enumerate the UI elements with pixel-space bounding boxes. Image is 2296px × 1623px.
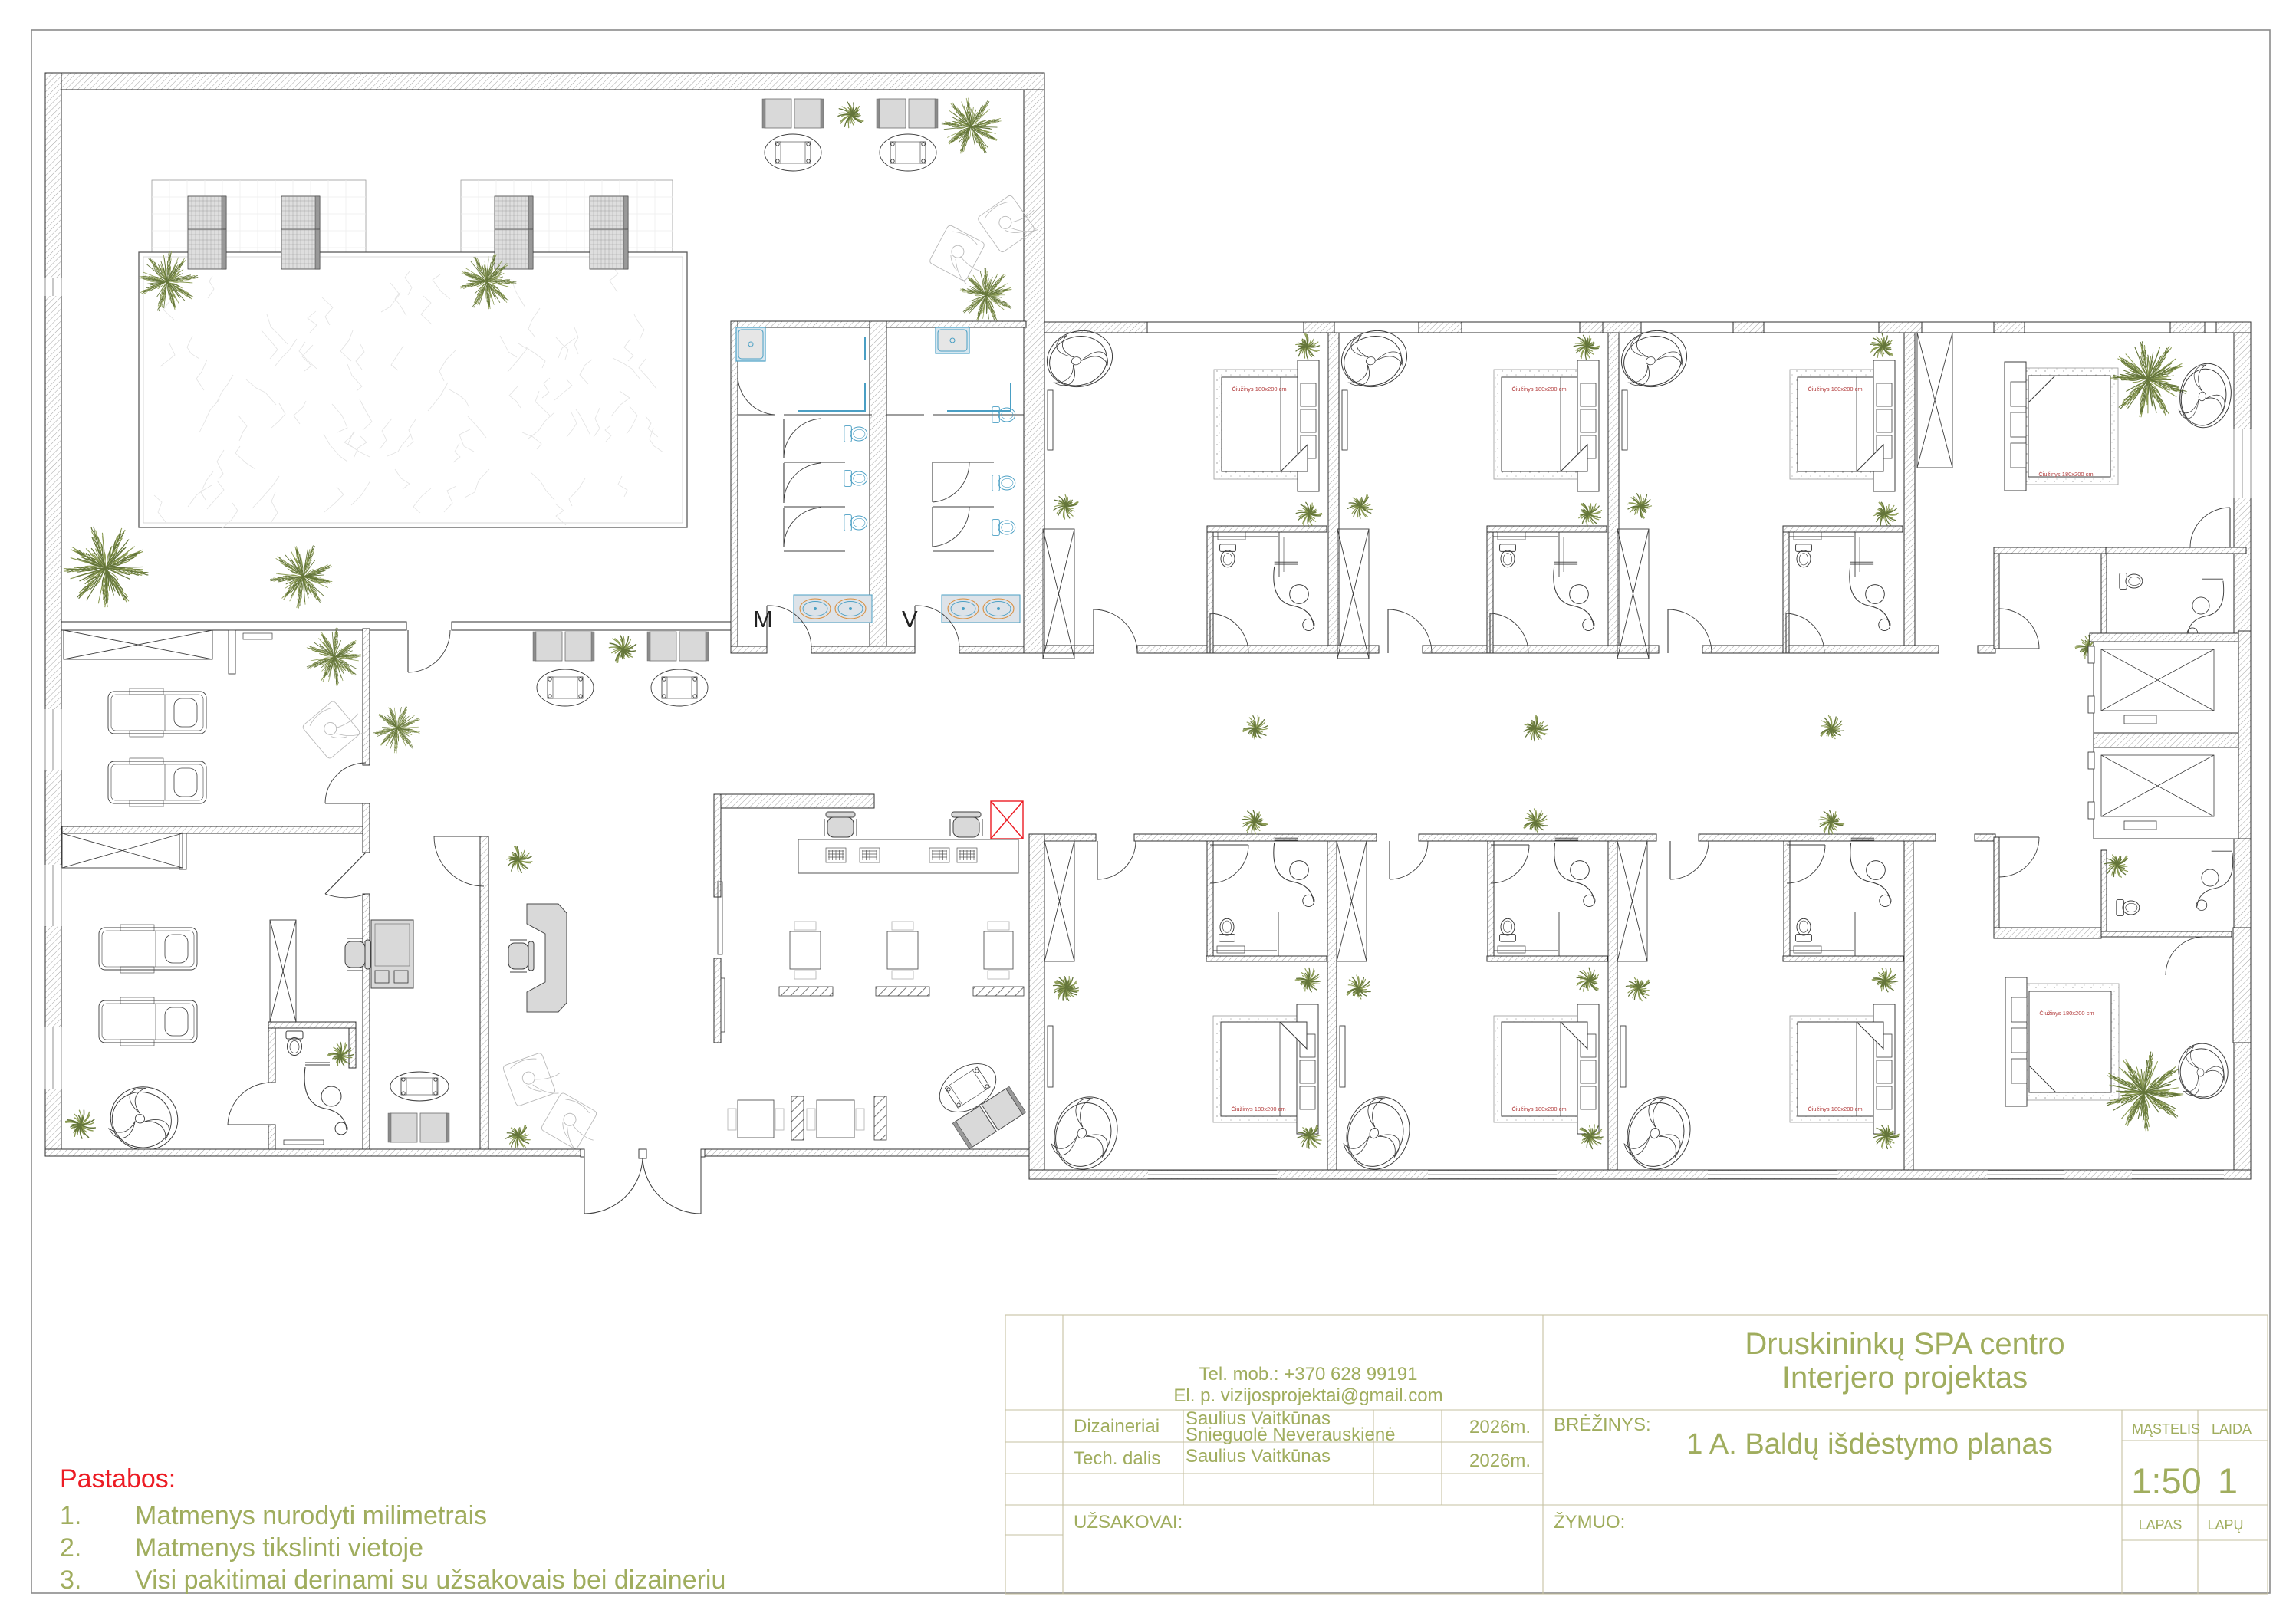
svg-text:MĄSTELIS: MĄSTELIS <box>2132 1421 2200 1437</box>
svg-text:Matmenys nurodyti milimetrais: Matmenys nurodyti milimetrais <box>135 1501 487 1530</box>
svg-text:LAPAS: LAPAS <box>2139 1517 2183 1533</box>
svg-text:ŽYMUO:: ŽYMUO: <box>1554 1512 1625 1533</box>
svg-text:1: 1 <box>2218 1460 2238 1501</box>
svg-text:LAPŲ: LAPŲ <box>2207 1517 2243 1533</box>
svg-text:2.: 2. <box>60 1533 81 1562</box>
svg-text:M: M <box>753 606 773 632</box>
svg-text:Čiužinys 180x200 cm: Čiužinys 180x200 cm <box>1511 386 1566 393</box>
svg-text:V: V <box>902 606 918 632</box>
svg-text:Čiužinys 180x200 cm: Čiužinys 180x200 cm <box>1808 1106 1862 1112</box>
svg-text:1:50: 1:50 <box>2131 1460 2201 1501</box>
svg-text:2026m.: 2026m. <box>1469 1417 1531 1437</box>
svg-text:Čiužinys 180x200 cm: Čiužinys 180x200 cm <box>2038 471 2093 478</box>
svg-text:UŽSAKOVAI:: UŽSAKOVAI: <box>1074 1512 1183 1533</box>
svg-text:Saulius Vaitkūnas: Saulius Vaitkūnas <box>1186 1446 1331 1467</box>
svg-text:Čiužinys 180x200 cm: Čiužinys 180x200 cm <box>2039 1010 2094 1017</box>
svg-text:2026m.: 2026m. <box>1469 1451 1531 1471</box>
svg-text:Interjero projektas: Interjero projektas <box>1782 1361 2028 1395</box>
svg-text:Matmenys tikslinti vietoje: Matmenys tikslinti vietoje <box>135 1533 423 1562</box>
svg-text:Tel. mob.: +370 628 99191: Tel. mob.: +370 628 99191 <box>1199 1364 1418 1385</box>
svg-text:Visi pakitimai derinami su užs: Visi pakitimai derinami su užsakovais be… <box>135 1566 725 1595</box>
svg-text:BRĖŽINYS:: BRĖŽINYS: <box>1554 1414 1651 1435</box>
svg-text:1 A. Baldų išdėstymo planas: 1 A. Baldų išdėstymo planas <box>1686 1428 2052 1460</box>
svg-text:Druskininkų SPA centro: Druskininkų SPA centro <box>1745 1327 2064 1361</box>
svg-text:Čiužinys 180x200 cm: Čiužinys 180x200 cm <box>1232 386 1286 393</box>
svg-text:Snieguolė Neverauskienė: Snieguolė Neverauskienė <box>1186 1424 1396 1445</box>
svg-text:3.: 3. <box>60 1566 81 1595</box>
svg-text:Čiužinys 180x200 cm: Čiužinys 180x200 cm <box>1808 386 1862 393</box>
svg-text:Čiužinys 180x200 cm: Čiužinys 180x200 cm <box>1511 1106 1566 1112</box>
svg-text:El. p. vizijosprojektai@gmail.: El. p. vizijosprojektai@gmail.com <box>1173 1385 1442 1406</box>
svg-text:Čiužinys 180x200 cm: Čiužinys 180x200 cm <box>1231 1106 1285 1112</box>
svg-text:Dizaineriai: Dizaineriai <box>1074 1416 1160 1437</box>
svg-text:LAIDA: LAIDA <box>2212 1421 2252 1437</box>
svg-text:Tech. dalis: Tech. dalis <box>1074 1448 1160 1469</box>
svg-text:1.: 1. <box>60 1501 81 1530</box>
svg-text:Pastabos:: Pastabos: <box>60 1464 176 1493</box>
